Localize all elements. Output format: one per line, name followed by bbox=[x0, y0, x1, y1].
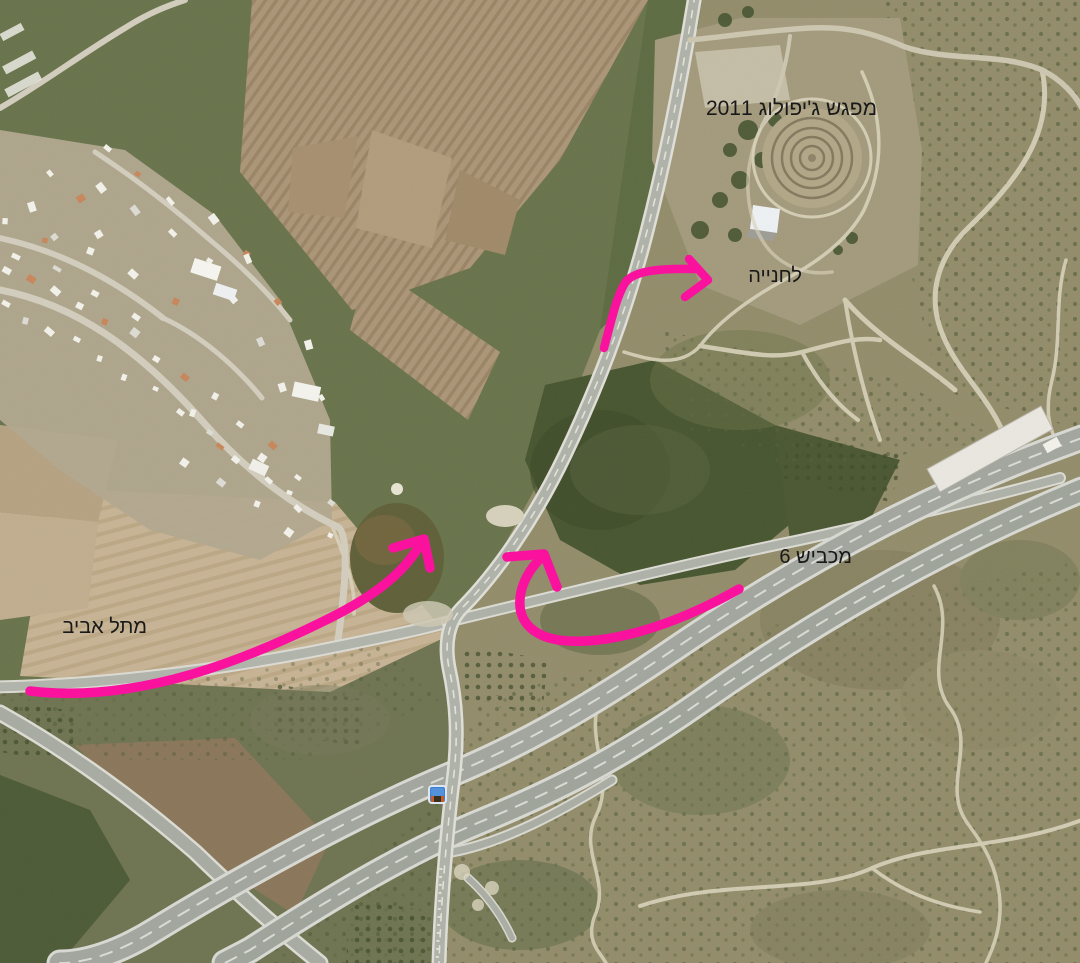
noise-overlay bbox=[0, 0, 1080, 963]
meetup-label: מפגש ג'יפולוג 2011 bbox=[699, 97, 877, 120]
satellite-map[interactable]: מפגש ג'יפולוג 2011 לחנייה מכביש 6 מתל אב… bbox=[0, 0, 1080, 963]
vehicle-marker-icon[interactable] bbox=[428, 785, 447, 804]
highway6-label: מכביש 6 bbox=[766, 546, 852, 568]
tel-aviv-label: מתל אביב bbox=[52, 616, 147, 638]
marker-body bbox=[431, 796, 444, 802]
parking-label: לחנייה bbox=[737, 265, 802, 287]
marker-window bbox=[431, 788, 444, 796]
map-graphics bbox=[0, 0, 1080, 963]
